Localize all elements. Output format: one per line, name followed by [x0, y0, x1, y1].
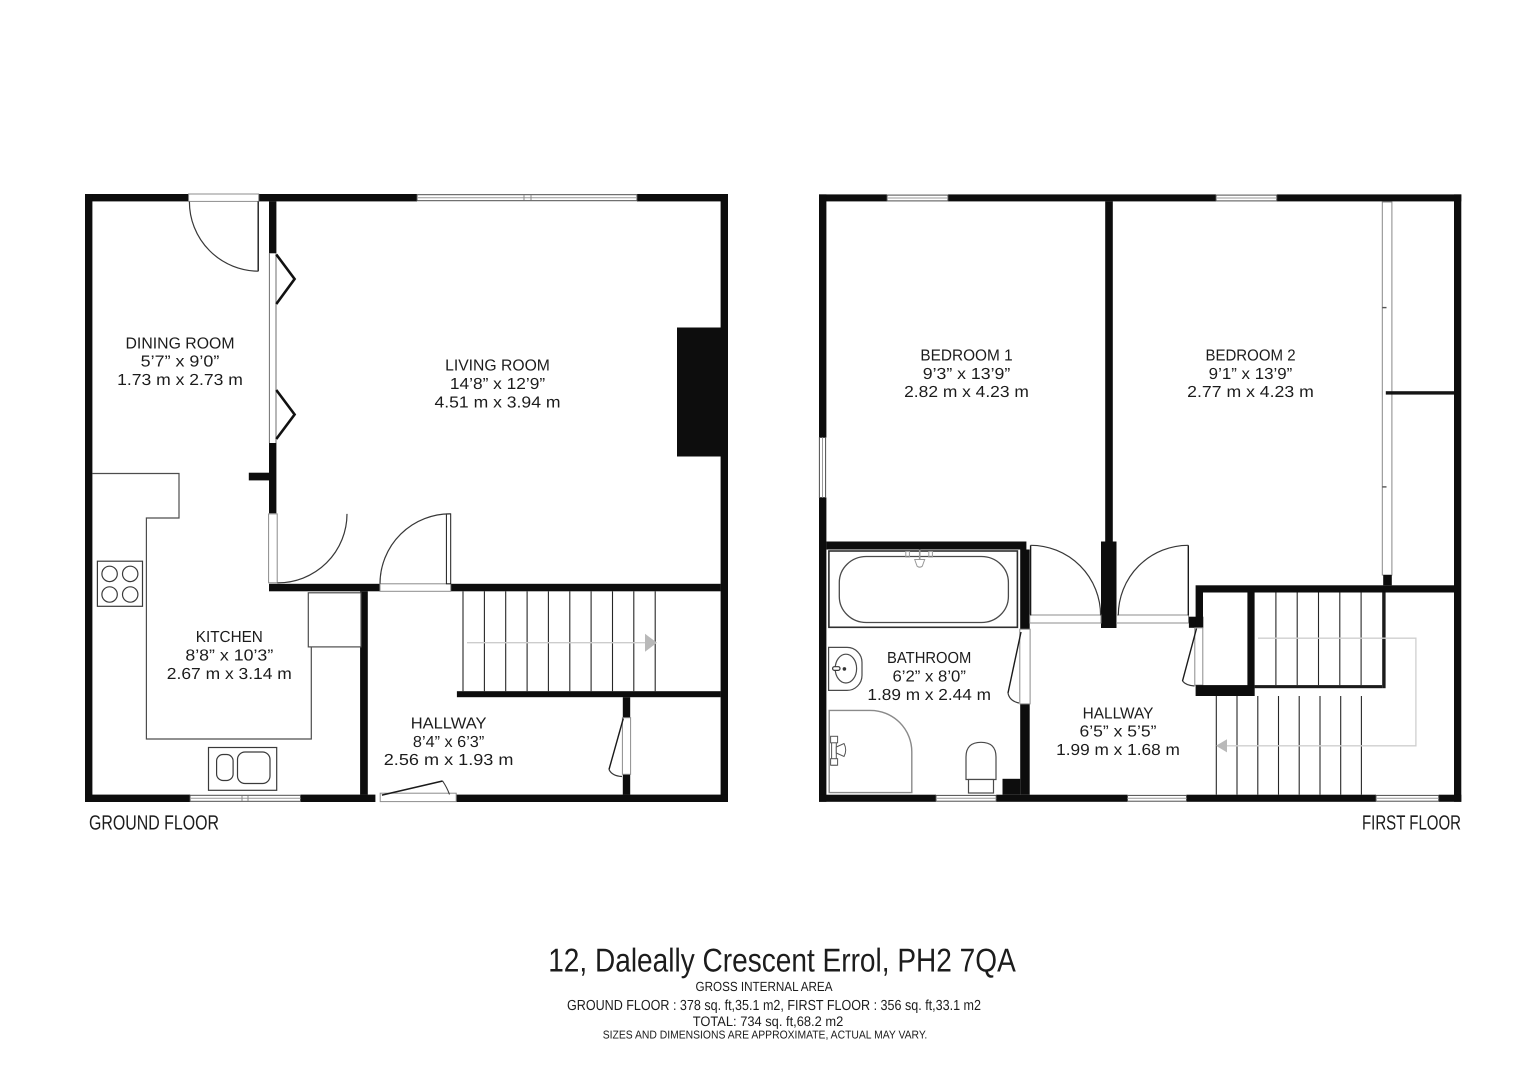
svg-text:GROUND FLOOR : 378 sq. ft,35.1: GROUND FLOOR : 378 sq. ft,35.1 m2, FIRST… [567, 998, 981, 1014]
svg-text:6’2” x 8’0”: 6’2” x 8’0” [893, 669, 966, 686]
svg-text:GROSS INTERNAL AREA: GROSS INTERNAL AREA [696, 979, 833, 994]
svg-text:2.82 m x 4.23 m: 2.82 m x 4.23 m [904, 384, 1029, 401]
svg-text:GROUND FLOOR: GROUND FLOOR [89, 812, 219, 835]
svg-text:2.56 m x 1.93 m: 2.56 m x 1.93 m [384, 752, 514, 769]
svg-text:6’5” x 5’5”: 6’5” x 5’5” [1080, 724, 1157, 741]
svg-text:HALLWAY: HALLWAY [411, 716, 487, 733]
svg-text:SIZES AND DIMENSIONS ARE APPRO: SIZES AND DIMENSIONS ARE APPROXIMATE, AC… [603, 1030, 928, 1042]
svg-text:2.67 m x 3.14 m: 2.67 m x 3.14 m [167, 666, 292, 683]
svg-text:1.99 m x 1.68 m: 1.99 m x 1.68 m [1056, 742, 1180, 759]
svg-text:1.89 m x 2.44 m: 1.89 m x 2.44 m [867, 687, 991, 704]
svg-text:BEDROOM 2: BEDROOM 2 [1205, 348, 1295, 365]
svg-text:14’8” x 12’9”: 14’8” x 12’9” [450, 376, 545, 393]
svg-text:LIVING ROOM: LIVING ROOM [445, 358, 550, 375]
svg-text:DINING ROOM: DINING ROOM [126, 335, 235, 352]
svg-text:12, Daleally Crescent Errol, P: 12, Daleally Crescent Errol, PH2 7QA [548, 942, 1016, 979]
svg-text:8’8” x 10’3”: 8’8” x 10’3” [185, 648, 273, 665]
svg-text:9’3” x 13’9”: 9’3” x 13’9” [923, 366, 1011, 383]
svg-text:BEDROOM 1: BEDROOM 1 [920, 348, 1012, 365]
svg-text:BATHROOM: BATHROOM [887, 650, 971, 667]
svg-text:FIRST FLOOR: FIRST FLOOR [1362, 812, 1461, 835]
svg-text:TOTAL: 734 sq. ft,68.2 m2: TOTAL: 734 sq. ft,68.2 m2 [693, 1014, 844, 1029]
svg-text:5’7” x 9’0”: 5’7” x 9’0” [141, 354, 220, 371]
svg-text:9’1” x 13’9”: 9’1” x 13’9” [1209, 366, 1293, 383]
svg-text:8’4” x 6’3”: 8’4” x 6’3” [413, 734, 484, 751]
svg-text:HALLWAY: HALLWAY [1083, 705, 1154, 722]
svg-text:4.51 m x 3.94 m: 4.51 m x 3.94 m [435, 394, 561, 411]
svg-text:KITCHEN: KITCHEN [196, 629, 263, 646]
svg-text:1.73 m x 2.73 m: 1.73 m x 2.73 m [117, 372, 243, 389]
svg-text:2.77 m x 4.23 m: 2.77 m x 4.23 m [1187, 384, 1314, 401]
